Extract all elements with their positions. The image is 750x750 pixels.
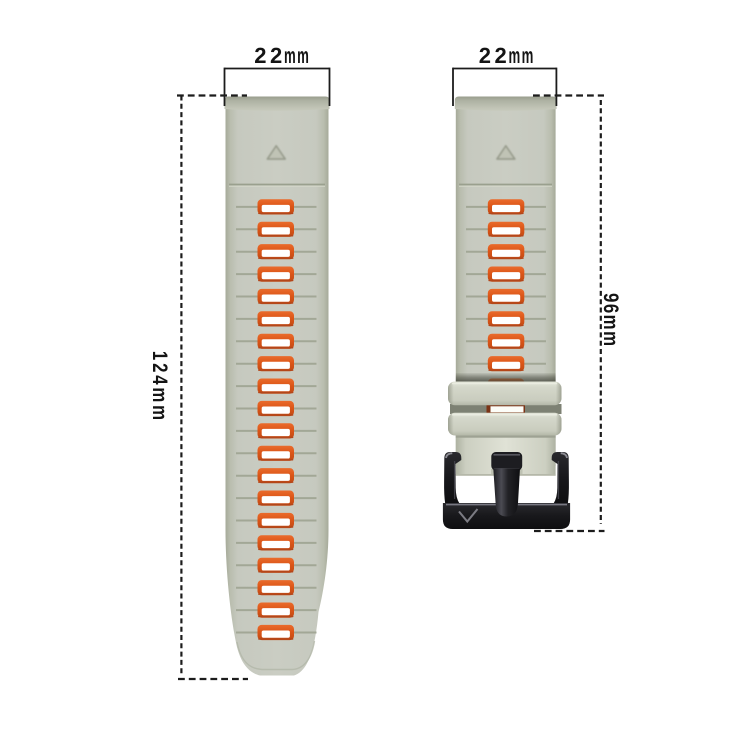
svg-text:96mm: 96mm: [599, 293, 622, 346]
svg-text:22: 22: [254, 43, 286, 68]
svg-text:mm: mm: [284, 43, 310, 68]
svg-text:mm: mm: [509, 43, 535, 68]
svg-text:22: 22: [479, 43, 511, 68]
